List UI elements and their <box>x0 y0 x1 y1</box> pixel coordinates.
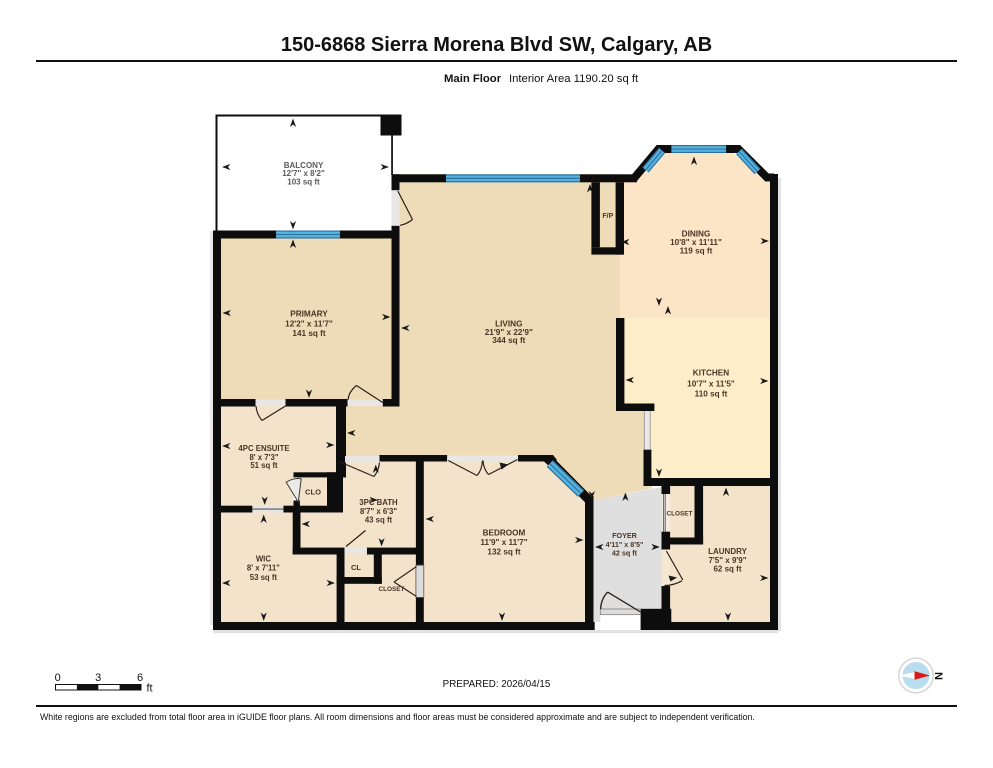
svg-text:CLOSET: CLOSET <box>667 511 693 518</box>
svg-text:CLOSET: CLOSET <box>379 586 405 593</box>
svg-text:CL: CL <box>351 563 361 572</box>
svg-text:CLO: CLO <box>305 487 321 496</box>
svg-text:BALCONY12'7" x 8'2"103 sq ft: BALCONY12'7" x 8'2"103 sq ft <box>282 161 325 186</box>
svg-text:BEDROOM11'9" x 11'7"132 sq ft: BEDROOM11'9" x 11'7"132 sq ft <box>480 529 527 557</box>
svg-text:F/P: F/P <box>602 213 613 220</box>
